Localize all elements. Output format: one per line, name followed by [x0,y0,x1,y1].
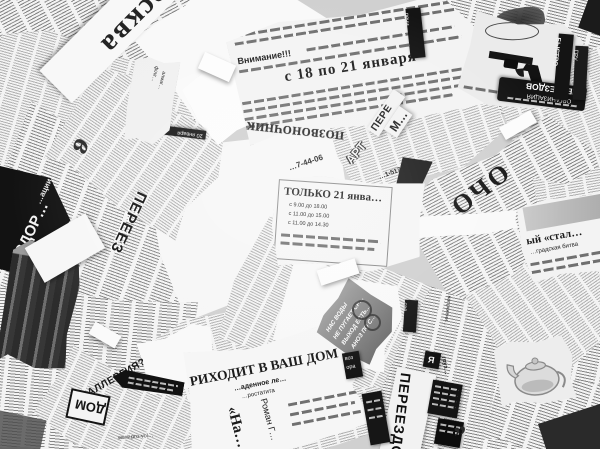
voz-text: воз [344,355,353,362]
teapot-photo-scrap [493,334,577,408]
print-line-white [435,385,459,391]
print-line [243,75,467,113]
print-line-white [369,415,383,419]
outline-circle-letter [364,314,381,331]
vertical-quote-letters: «На… [223,405,250,449]
teapot-sketch [497,340,572,403]
ya-block: Я [423,351,442,370]
ya-text: Я [427,354,435,365]
kv-side-text-b: алмаг… [156,71,166,91]
pechi-text: печи… [403,13,410,32]
print-line-white [366,399,380,403]
gruz-text: ГРУ… [571,49,578,66]
print-line-white [434,391,458,397]
print-line-white [433,397,457,403]
oval-stamp [485,22,539,41]
ora-text: ора [346,364,356,372]
sve-text: свё… [400,302,407,317]
newspaper-collage-photo: осква в Внимание!!! с 18 по 21 января 20… [0,0,600,449]
dom-text: ДОМ [74,396,107,417]
print-line-white [367,407,381,411]
sve-strip: свё… [403,300,418,333]
vertical-author: Роман Г… [259,397,280,441]
